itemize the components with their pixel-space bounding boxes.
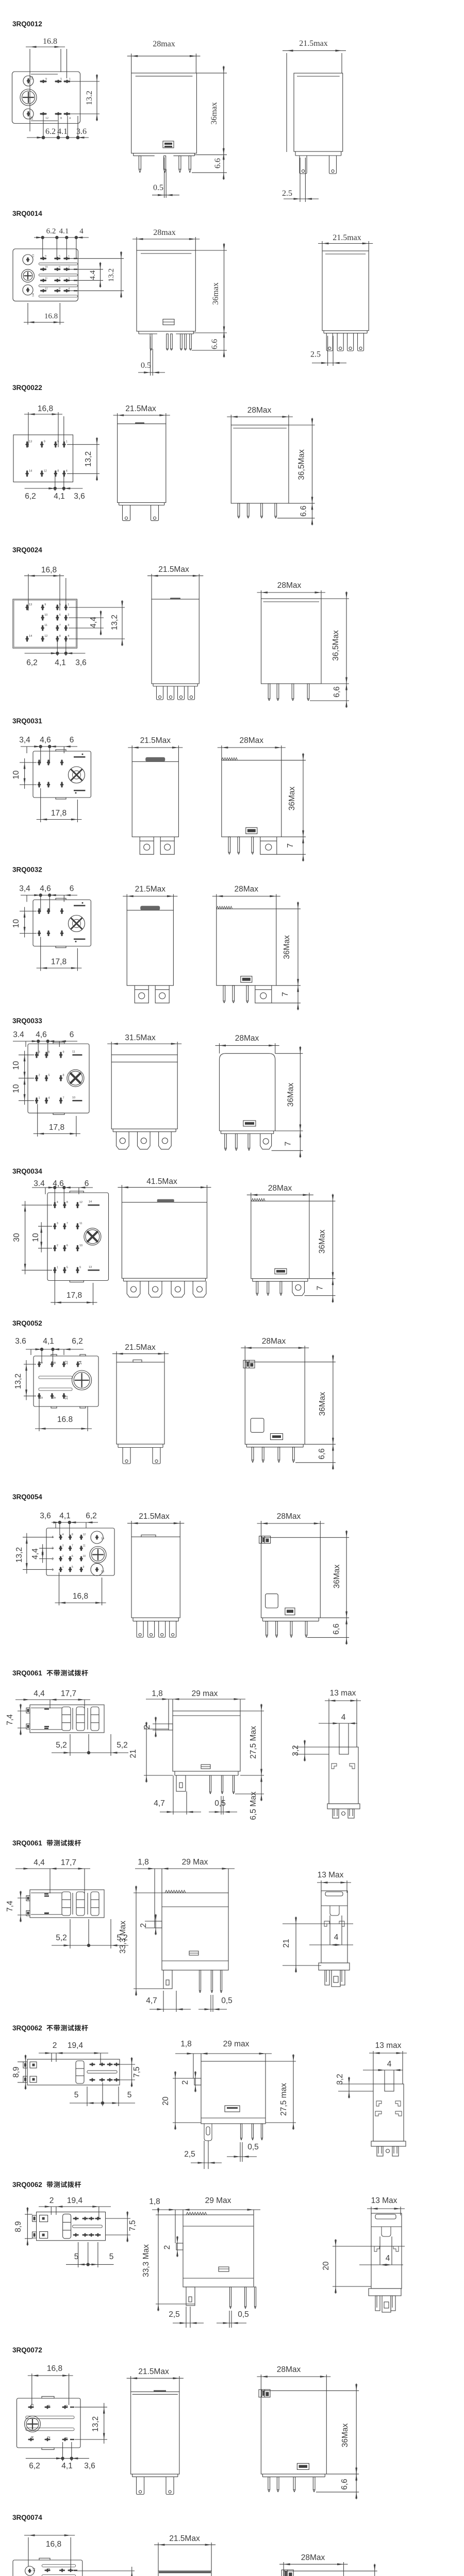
svg-text:3.6: 3.6: [15, 1337, 26, 1346]
svg-text:3RQ0062: 3RQ0062: [12, 2024, 42, 2032]
svg-text:0,5: 0,5: [247, 2143, 259, 2151]
svg-text:5: 5: [57, 440, 59, 444]
svg-text:5: 5: [59, 603, 61, 606]
svg-text:0,5: 0,5: [221, 1996, 233, 2005]
svg-text:5,2: 5,2: [56, 1934, 67, 1942]
svg-text:33,3 Max: 33,3 Max: [119, 1921, 127, 1954]
svg-text:6,2: 6,2: [86, 1512, 97, 1520]
svg-text:5: 5: [60, 78, 62, 81]
svg-text:5: 5: [74, 2091, 79, 2099]
svg-text:13: 13: [65, 1396, 69, 1400]
svg-text:6: 6: [70, 885, 74, 893]
svg-text:28Max: 28Max: [277, 2365, 301, 2374]
svg-text:8: 8: [59, 635, 61, 638]
svg-text:16,8: 16,8: [46, 2540, 61, 2549]
svg-text:6,2: 6,2: [25, 492, 36, 501]
svg-text:4: 4: [79, 227, 84, 235]
svg-text:36Max: 36Max: [288, 786, 296, 810]
svg-text:12: 12: [83, 1533, 86, 1536]
svg-text:4,4: 4,4: [34, 1858, 45, 1867]
svg-text:0.5: 0.5: [141, 361, 151, 370]
svg-text:21.5Max: 21.5Max: [140, 736, 171, 745]
svg-text:13,2: 13,2: [15, 1547, 24, 1563]
svg-text:10: 10: [31, 1233, 40, 1242]
svg-text:21.5Max: 21.5Max: [158, 565, 189, 574]
svg-text:1: 1: [39, 1096, 40, 1099]
svg-text:3: 3: [68, 624, 69, 627]
svg-text:3RQ0054: 3RQ0054: [12, 1493, 42, 1501]
svg-text:1: 1: [57, 1266, 58, 1269]
svg-text:13: 13: [32, 2568, 36, 2572]
svg-text:13: 13: [89, 1266, 92, 1269]
svg-text:6,2: 6,2: [26, 658, 38, 667]
svg-text:4,1: 4,1: [43, 1337, 54, 1346]
svg-text:17,8: 17,8: [51, 958, 67, 967]
svg-text:3RQ0033: 3RQ0033: [12, 1017, 42, 1025]
svg-text:21.5max: 21.5max: [333, 233, 361, 242]
svg-text:0.5: 0.5: [153, 183, 163, 192]
svg-text:3RQ0022: 3RQ0022: [12, 384, 42, 392]
svg-text:1: 1: [68, 255, 70, 258]
svg-text:5: 5: [109, 2252, 114, 2261]
svg-text:7: 7: [67, 1222, 68, 1225]
svg-text:4,4: 4,4: [34, 1689, 45, 1698]
svg-text:5,2: 5,2: [117, 1741, 128, 1750]
svg-text:19,4: 19,4: [68, 2041, 84, 2050]
svg-text:8,9: 8,9: [12, 2066, 21, 2078]
svg-text:33,3 Max: 33,3 Max: [142, 2244, 151, 2277]
svg-text:2: 2: [139, 1923, 148, 1928]
svg-text:6,2: 6,2: [72, 1337, 83, 1346]
svg-text:7,5: 7,5: [132, 2066, 141, 2078]
svg-text:13: 13: [29, 603, 32, 606]
svg-text:17,8: 17,8: [67, 1291, 82, 1300]
svg-text:28Max: 28Max: [247, 406, 272, 415]
svg-text:3,6: 3,6: [84, 2462, 95, 2470]
svg-text:3RQ0012: 3RQ0012: [12, 20, 42, 28]
svg-text:4.1: 4.1: [57, 127, 68, 136]
svg-text:7: 7: [59, 277, 60, 280]
svg-text:2: 2: [53, 2041, 57, 2050]
svg-text:13 max: 13 max: [375, 2041, 402, 2050]
svg-text:3RQ0031: 3RQ0031: [12, 717, 42, 725]
svg-text:10: 10: [12, 1084, 21, 1093]
svg-text:28Max: 28Max: [235, 885, 259, 894]
svg-text:4: 4: [334, 1933, 339, 1942]
svg-text:8: 8: [65, 2437, 69, 2439]
svg-text:1,8: 1,8: [138, 1858, 149, 1867]
svg-text:7,5: 7,5: [128, 2220, 137, 2231]
svg-text:6,5 Max: 6,5 Max: [249, 1791, 258, 1820]
svg-text:2: 2: [163, 2245, 172, 2250]
svg-text:21: 21: [129, 1749, 138, 1758]
svg-text:7,4: 7,4: [6, 1714, 14, 1725]
svg-text:8: 8: [63, 1074, 64, 1077]
svg-text:3: 3: [62, 1545, 64, 1548]
svg-text:14: 14: [29, 635, 32, 638]
svg-text:17,8: 17,8: [49, 1123, 64, 1132]
svg-text:4,6: 4,6: [40, 736, 51, 744]
svg-text:2: 2: [68, 614, 69, 617]
svg-text:10: 10: [45, 266, 48, 269]
svg-text:4,7: 4,7: [154, 1799, 165, 1808]
svg-text:3,2: 3,2: [291, 1745, 300, 1756]
svg-text:3RQ0072: 3RQ0072: [12, 2346, 42, 2354]
svg-text:6.6: 6.6: [213, 158, 222, 168]
svg-text:4: 4: [62, 1533, 64, 1536]
svg-text:14: 14: [31, 293, 35, 297]
svg-text:36Max: 36Max: [318, 1392, 327, 1416]
svg-text:5: 5: [67, 1266, 68, 1269]
svg-text:30: 30: [12, 1233, 21, 1242]
svg-text:12: 12: [79, 1201, 82, 1204]
svg-text:11: 11: [79, 1222, 82, 1225]
svg-text:16,8: 16,8: [41, 566, 57, 574]
svg-text:4: 4: [68, 635, 69, 638]
svg-text:5: 5: [72, 1566, 73, 1569]
svg-text:4: 4: [341, 1713, 346, 1722]
svg-text:5: 5: [48, 1074, 50, 1077]
svg-text:4,1: 4,1: [59, 1512, 71, 1520]
svg-text:4: 4: [386, 2254, 390, 2263]
svg-text:8: 8: [57, 469, 59, 472]
svg-text:29 max: 29 max: [223, 2040, 250, 2048]
svg-text:19,4: 19,4: [67, 2196, 83, 2205]
svg-text:8: 8: [72, 1533, 73, 1536]
svg-text:13: 13: [31, 255, 35, 258]
svg-text:8: 8: [60, 117, 62, 120]
svg-text:16.8: 16.8: [44, 312, 58, 320]
svg-text:36max: 36max: [211, 282, 220, 305]
svg-text:2: 2: [39, 1074, 40, 1077]
svg-text:1: 1: [69, 78, 71, 81]
svg-text:9: 9: [47, 2568, 51, 2570]
svg-text:7: 7: [63, 1096, 64, 1099]
svg-text:0,5: 0,5: [214, 1799, 226, 1808]
svg-text:3RQ0034: 3RQ0034: [12, 1167, 42, 1175]
svg-text:4,7: 4,7: [146, 1996, 157, 2005]
svg-text:5,2: 5,2: [56, 1741, 67, 1750]
svg-text:11: 11: [83, 1545, 86, 1548]
svg-text:29 max: 29 max: [192, 1689, 218, 1698]
svg-text:36,5Max: 36,5Max: [332, 630, 340, 661]
svg-text:9: 9: [79, 1266, 81, 1269]
svg-text:21.5Max: 21.5Max: [139, 1512, 170, 1521]
svg-text:8,9: 8,9: [14, 2221, 23, 2232]
svg-text:1,8: 1,8: [152, 1689, 163, 1698]
svg-text:14: 14: [89, 1200, 92, 1204]
svg-text:12: 12: [44, 469, 47, 472]
svg-text:20: 20: [161, 2096, 170, 2106]
svg-text:36Max: 36Max: [283, 935, 291, 959]
svg-text:3: 3: [39, 1051, 40, 1054]
svg-text:17,8: 17,8: [51, 809, 67, 818]
svg-text:20: 20: [322, 2261, 330, 2270]
svg-text:41.5Max: 41.5Max: [146, 1177, 177, 1186]
svg-text:13 max: 13 max: [330, 1689, 356, 1698]
svg-text:4,4: 4,4: [31, 1548, 40, 1560]
svg-text:3RQ0052: 3RQ0052: [12, 1319, 42, 1327]
svg-text:13: 13: [29, 440, 32, 444]
svg-text:13 Max: 13 Max: [318, 1871, 344, 1879]
svg-text:4: 4: [40, 1362, 44, 1364]
svg-text:6: 6: [70, 1030, 74, 1039]
svg-text:3RQ0061: 3RQ0061: [12, 1669, 42, 1677]
svg-text:10: 10: [44, 614, 47, 617]
svg-text:28Max: 28Max: [235, 1034, 259, 1043]
svg-text:9: 9: [45, 255, 46, 258]
svg-text:13.2: 13.2: [85, 91, 94, 105]
svg-text:3: 3: [68, 277, 70, 280]
svg-text:3,2: 3,2: [336, 2074, 344, 2085]
svg-text:0,5: 0,5: [238, 2310, 249, 2319]
svg-text:3,4: 3,4: [19, 885, 30, 893]
svg-text:2: 2: [57, 1244, 58, 1247]
svg-text:1: 1: [68, 603, 69, 606]
svg-text:28max: 28max: [153, 40, 175, 48]
svg-text:9: 9: [63, 1051, 64, 1054]
svg-text:4: 4: [68, 287, 70, 290]
svg-text:14: 14: [29, 469, 32, 472]
svg-text:7: 7: [59, 624, 61, 627]
svg-text:6,6: 6,6: [333, 686, 341, 698]
svg-text:2: 2: [62, 1555, 64, 1558]
svg-text:4.4: 4.4: [89, 270, 97, 280]
svg-text:14: 14: [30, 116, 34, 121]
svg-text:28max: 28max: [153, 228, 176, 237]
svg-text:28Max: 28Max: [301, 2553, 325, 2562]
svg-text:3RQ0062: 3RQ0062: [12, 2181, 42, 2189]
svg-text:3RQ0032: 3RQ0032: [12, 866, 42, 874]
svg-text:6.2: 6.2: [45, 127, 56, 136]
svg-text:7: 7: [284, 1142, 292, 1146]
svg-text:1: 1: [66, 440, 68, 444]
svg-text:4,1: 4,1: [55, 658, 66, 667]
svg-text:28Max: 28Max: [268, 1184, 292, 1193]
svg-text:16,8: 16,8: [38, 404, 53, 413]
svg-text:21.5Max: 21.5Max: [169, 2534, 200, 2543]
svg-text:27,5 max: 27,5 max: [279, 2083, 288, 2116]
svg-text:13.2: 13.2: [107, 268, 115, 282]
svg-text:4: 4: [69, 117, 71, 120]
svg-text:28Max: 28Max: [277, 581, 302, 590]
svg-text:5: 5: [65, 2405, 69, 2407]
svg-text:5: 5: [74, 2252, 79, 2261]
svg-text:13 Max: 13 Max: [371, 2196, 397, 2205]
svg-text:9: 9: [83, 1566, 85, 1569]
svg-text:3,4: 3,4: [19, 736, 30, 744]
svg-text:11: 11: [44, 624, 47, 627]
svg-text:6: 6: [59, 266, 60, 269]
svg-text:13: 13: [30, 76, 34, 80]
svg-text:10: 10: [79, 1244, 82, 1247]
svg-text:2.5: 2.5: [282, 189, 292, 198]
svg-text:5: 5: [127, 2091, 132, 2099]
svg-text:36max: 36max: [210, 102, 219, 125]
svg-text:1,8: 1,8: [180, 2040, 192, 2048]
svg-text:3: 3: [57, 1222, 58, 1225]
svg-text:4: 4: [57, 1201, 58, 1204]
svg-text:8: 8: [67, 1201, 68, 1204]
svg-text:36Max: 36Max: [286, 1082, 295, 1107]
svg-text:10: 10: [12, 919, 21, 928]
svg-text:13,2: 13,2: [84, 451, 93, 467]
svg-text:9: 9: [44, 440, 45, 444]
svg-text:12: 12: [45, 287, 48, 290]
svg-text:13: 13: [31, 2404, 35, 2408]
svg-text:16,8: 16,8: [73, 1592, 88, 1601]
svg-text:2,5: 2,5: [169, 2310, 180, 2319]
svg-text:2,5: 2,5: [184, 2150, 195, 2159]
svg-text:13,2: 13,2: [91, 2416, 100, 2432]
svg-text:21.5Max: 21.5Max: [125, 404, 156, 413]
svg-text:28Max: 28Max: [277, 1512, 301, 1521]
svg-text:7: 7: [316, 1286, 325, 1291]
svg-text:2: 2: [181, 2080, 190, 2085]
svg-text:21: 21: [282, 1939, 291, 1947]
svg-text:3RQ0024: 3RQ0024: [12, 546, 42, 554]
svg-text:3.4: 3.4: [13, 1030, 24, 1039]
svg-text:6: 6: [59, 614, 61, 617]
svg-text:9: 9: [44, 603, 46, 606]
svg-text:12: 12: [45, 117, 48, 120]
svg-text:16,8: 16,8: [47, 2364, 62, 2373]
svg-text:7: 7: [286, 843, 295, 848]
svg-text:10: 10: [83, 1555, 86, 1558]
svg-text:4,1: 4,1: [61, 2462, 73, 2470]
svg-text:29 Max: 29 Max: [205, 2196, 231, 2205]
svg-text:12: 12: [47, 2436, 51, 2441]
svg-text:3,6: 3,6: [40, 1512, 51, 1520]
svg-text:3RQ0074: 3RQ0074: [12, 2514, 42, 2521]
svg-text:16.8: 16.8: [57, 1415, 73, 1424]
svg-text:28Max: 28Max: [240, 736, 264, 745]
svg-text:6.2: 6.2: [46, 227, 56, 235]
svg-text:6: 6: [48, 1051, 50, 1054]
svg-text:6: 6: [70, 736, 74, 744]
svg-text:6: 6: [67, 1244, 68, 1247]
svg-text:11: 11: [45, 277, 48, 280]
svg-text:9: 9: [53, 1397, 57, 1399]
svg-text:3.4: 3.4: [34, 1179, 45, 1188]
svg-text:14: 14: [79, 1361, 82, 1365]
svg-text:3.6: 3.6: [76, 127, 87, 136]
svg-text:16.8: 16.8: [43, 37, 57, 46]
svg-text:4,4: 4,4: [89, 617, 98, 628]
svg-text:4,1: 4,1: [54, 492, 65, 501]
svg-text:2: 2: [49, 2196, 54, 2205]
svg-text:4,6: 4,6: [40, 885, 51, 893]
svg-text:3RQ0061: 3RQ0061: [12, 1839, 42, 1847]
svg-text:4: 4: [48, 1096, 50, 1099]
svg-text:27,5 Max: 27,5 Max: [249, 1726, 258, 1759]
svg-text:13,2: 13,2: [110, 615, 119, 630]
svg-text:3,6: 3,6: [74, 492, 85, 501]
svg-text:3,6: 3,6: [75, 658, 87, 667]
svg-text:1: 1: [62, 1566, 64, 1569]
svg-text:28Max: 28Max: [262, 1337, 286, 1346]
svg-text:17,7: 17,7: [61, 1689, 76, 1698]
svg-text:36,5Max: 36,5Max: [297, 449, 306, 480]
svg-text:36Max: 36Max: [318, 1229, 327, 1253]
svg-text:11: 11: [72, 1050, 75, 1054]
svg-text:5: 5: [59, 255, 60, 258]
svg-text:12: 12: [44, 635, 47, 638]
svg-text:7: 7: [281, 992, 290, 996]
svg-text:6.6: 6.6: [210, 339, 219, 349]
svg-text:21.5Max: 21.5Max: [138, 2367, 169, 2376]
svg-text:36Max: 36Max: [333, 1564, 341, 1588]
svg-text:7: 7: [72, 1545, 73, 1548]
svg-text:21.5Max: 21.5Max: [135, 885, 166, 894]
svg-text:17,7: 17,7: [61, 1858, 76, 1867]
svg-text:4,6: 4,6: [36, 1030, 47, 1039]
svg-text:4: 4: [66, 469, 68, 472]
svg-text:2.5: 2.5: [310, 350, 321, 359]
svg-text:1,8: 1,8: [149, 2197, 160, 2206]
svg-text:6,2: 6,2: [29, 2462, 40, 2470]
svg-text:2: 2: [68, 266, 70, 269]
svg-text:6,6: 6,6: [332, 1623, 341, 1635]
svg-text:21.5Max: 21.5Max: [125, 1343, 156, 1352]
svg-text:2: 2: [143, 1725, 152, 1730]
svg-text:10: 10: [72, 1096, 75, 1099]
svg-text:4: 4: [387, 2060, 392, 2069]
svg-text:8: 8: [53, 1362, 57, 1364]
svg-text:12: 12: [65, 1361, 69, 1365]
svg-text:6,6: 6,6: [318, 1448, 326, 1460]
svg-text:21.5max: 21.5max: [299, 39, 328, 48]
svg-text:29 Max: 29 Max: [182, 1858, 208, 1867]
svg-text:10: 10: [12, 770, 21, 779]
svg-text:6,6: 6,6: [340, 2479, 349, 2490]
svg-text:4.1: 4.1: [59, 227, 69, 235]
svg-text:7,4: 7,4: [6, 1901, 14, 1912]
svg-text:13,2: 13,2: [14, 1374, 23, 1389]
svg-text:6.6: 6.6: [300, 505, 308, 517]
svg-text:5: 5: [40, 1397, 44, 1399]
svg-text:6: 6: [72, 1555, 73, 1558]
svg-text:3RQ0014: 3RQ0014: [12, 210, 42, 217]
svg-text:31.5Max: 31.5Max: [125, 1033, 156, 1042]
svg-text:8: 8: [59, 287, 60, 290]
svg-text:36Max: 36Max: [341, 2423, 350, 2447]
svg-text:9: 9: [45, 78, 47, 81]
svg-text:9: 9: [47, 2405, 51, 2407]
svg-text:10: 10: [12, 1061, 21, 1070]
svg-text:14: 14: [31, 2436, 35, 2441]
